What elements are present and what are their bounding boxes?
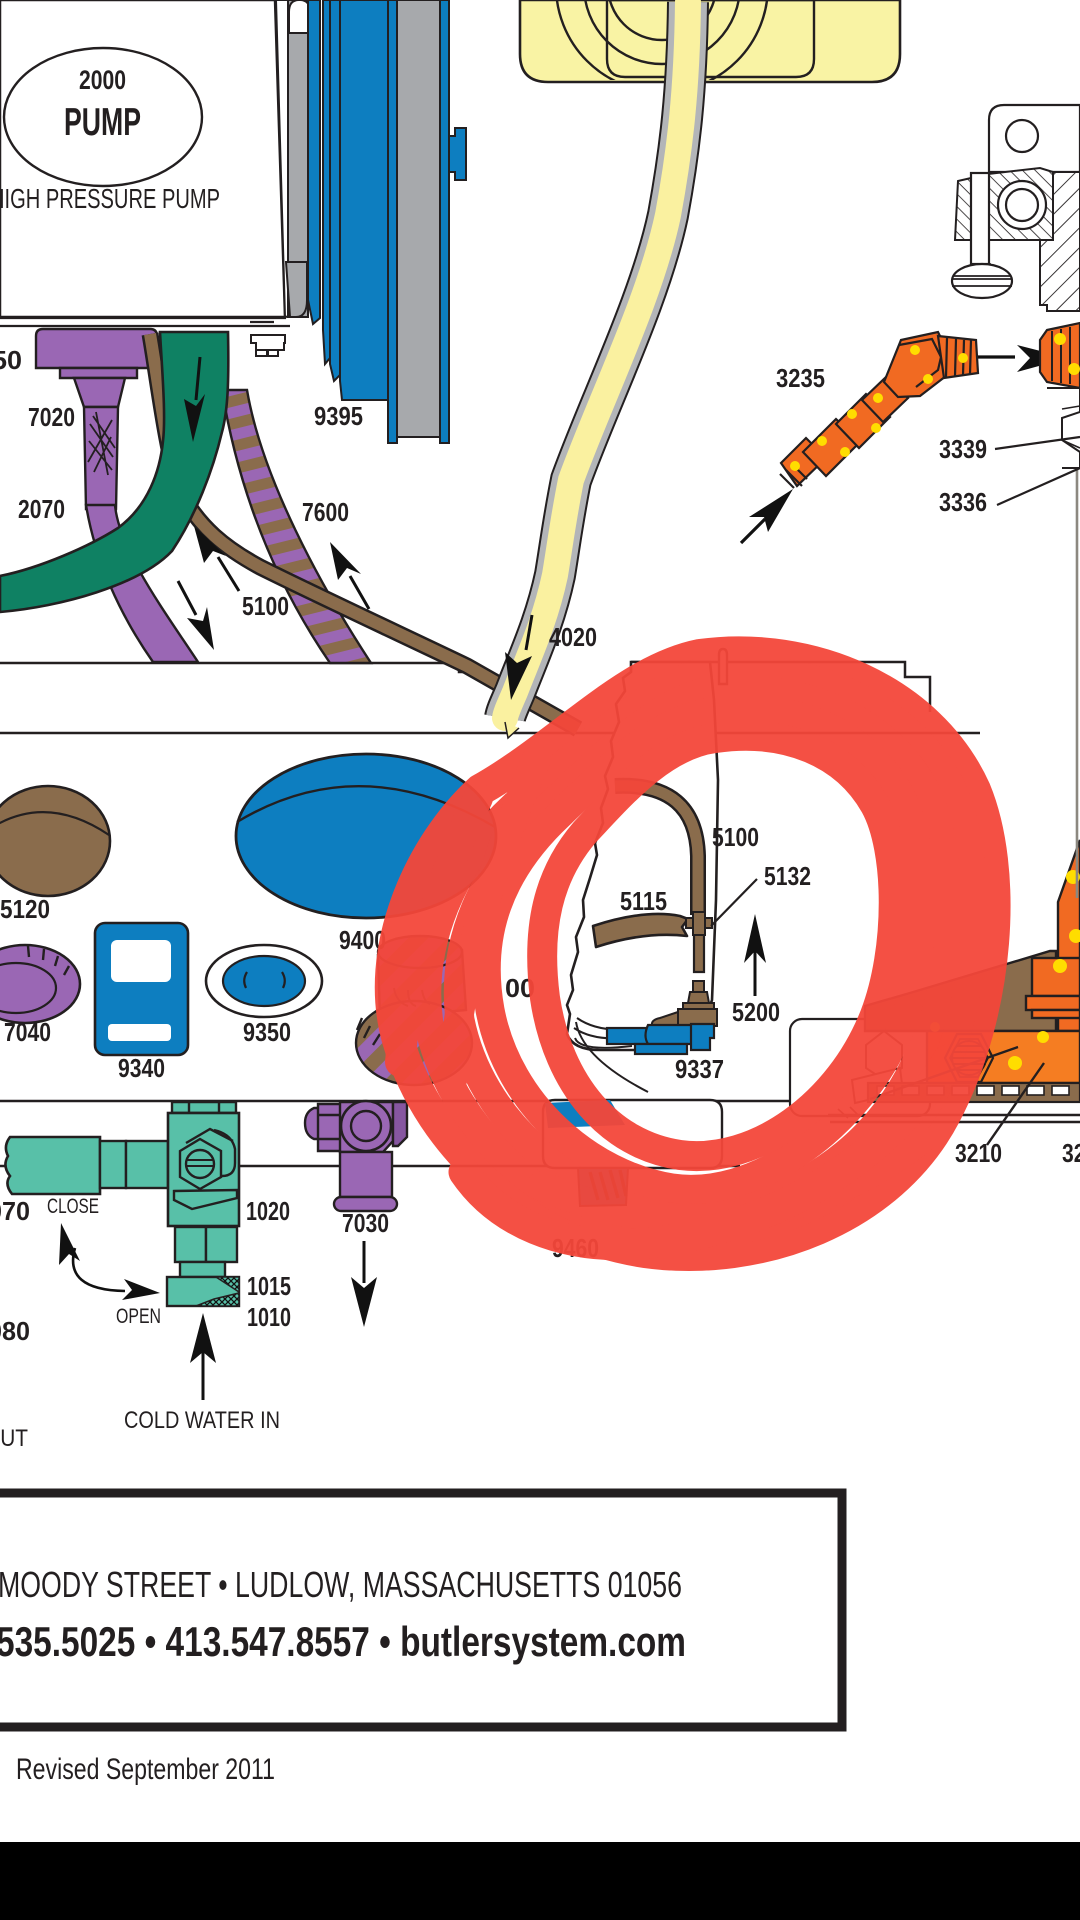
- svg-text:3235: 3235: [776, 363, 825, 393]
- svg-text:1020: 1020: [246, 1196, 290, 1226]
- svg-text:2070: 2070: [18, 494, 65, 524]
- svg-text:5115: 5115: [620, 886, 667, 916]
- svg-text:535.5025 • 413.547.8557 • butl: 535.5025 • 413.547.8557 • butlersystem.c…: [0, 1618, 686, 1665]
- svg-text:070: 070: [0, 1196, 30, 1226]
- svg-text:MOODY STREET • LUDLOW, MASSACH: MOODY STREET • LUDLOW, MASSACHUSETTS 010…: [0, 1564, 682, 1605]
- svg-text:Revised September 2011: Revised September 2011: [16, 1753, 275, 1786]
- svg-text:1015: 1015: [247, 1271, 291, 1301]
- svg-text:2000: 2000: [79, 65, 126, 95]
- svg-text:1010: 1010: [247, 1302, 291, 1332]
- svg-text:3336: 3336: [939, 487, 987, 517]
- svg-text:5100: 5100: [242, 591, 289, 621]
- svg-text:080: 080: [0, 1316, 30, 1346]
- svg-text:9340: 9340: [118, 1053, 165, 1083]
- svg-text:7040: 7040: [4, 1017, 51, 1047]
- svg-text:CLOSE: CLOSE: [47, 1195, 99, 1218]
- svg-text:5120: 5120: [0, 894, 50, 924]
- svg-text:9350: 9350: [243, 1017, 291, 1047]
- svg-text:HIGH PRESSURE PUMP: HIGH PRESSURE PUMP: [0, 183, 220, 214]
- svg-text:COLD WATER IN: COLD WATER IN: [124, 1407, 280, 1434]
- svg-text:OUT: OUT: [0, 1425, 28, 1452]
- svg-text:5200: 5200: [732, 997, 780, 1027]
- svg-text:50: 50: [0, 345, 22, 375]
- svg-text:3339: 3339: [939, 434, 987, 464]
- svg-text:9395: 9395: [314, 401, 363, 431]
- svg-text:4020: 4020: [549, 622, 597, 652]
- svg-text:OPEN: OPEN: [116, 1305, 161, 1328]
- svg-text:5100: 5100: [712, 822, 759, 852]
- svg-text:3210: 3210: [955, 1138, 1002, 1168]
- svg-text:5132: 5132: [764, 861, 811, 891]
- svg-text:9337: 9337: [675, 1054, 724, 1084]
- svg-text:3215: 3215: [1062, 1138, 1080, 1168]
- svg-text:7600: 7600: [302, 497, 349, 527]
- svg-text:7020: 7020: [28, 402, 75, 432]
- svg-text:7030: 7030: [342, 1208, 389, 1238]
- svg-text:PUMP: PUMP: [64, 101, 141, 144]
